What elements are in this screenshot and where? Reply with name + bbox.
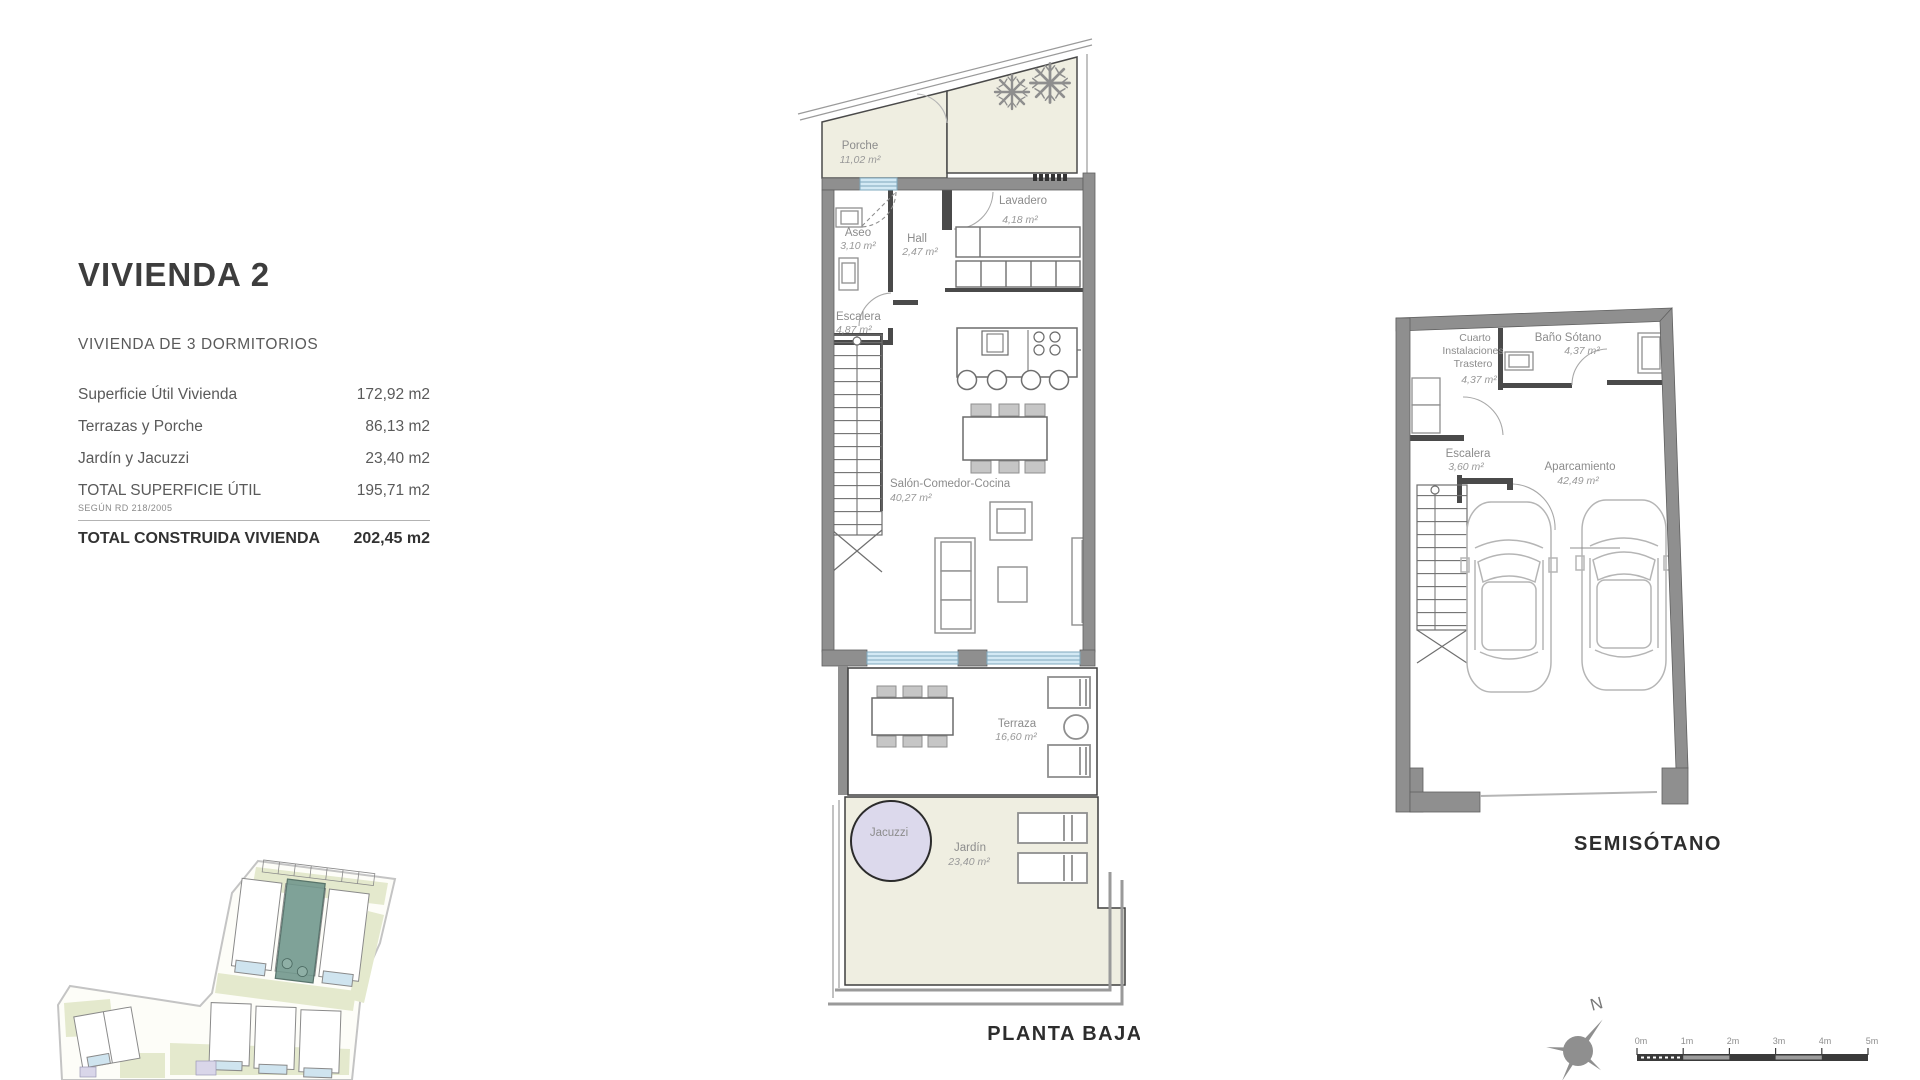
label-escalera-name: Escalera [836, 311, 881, 323]
area-row-util: Superficie Útil Vivienda 172,92 m2 [78, 386, 430, 406]
label-bano-name: Baño Sótano [1535, 332, 1602, 344]
info-panel: VIVIENDA 2 VIVIENDA DE 3 DORMITORIOS Sup… [78, 256, 430, 566]
label-aseo-area: 3,10 m² [840, 240, 876, 252]
area-row-label: TOTAL SUPERFICIE ÚTIL [78, 482, 261, 500]
label-aparcamiento-area: 42,49 m² [1557, 475, 1599, 487]
site-units-lower [209, 1003, 341, 1078]
label-sot-escalera-name: Escalera [1446, 448, 1491, 460]
ground-floor-plan: Porche 11,02 m² Aseo 3,10 m² Hall 2,47 m… [660, 30, 1140, 1050]
scale-bar: 0m 1m 2m 3m 4m 5m [1630, 1032, 1880, 1077]
label-porche-area: 11,02 m² [840, 154, 881, 166]
label-hall-area: 2,47 m² [901, 246, 938, 258]
label-aparcamiento-name: Aparcamiento [1545, 461, 1616, 473]
terrace-side-wall [838, 666, 848, 795]
divider-line [78, 520, 430, 521]
area-row-value: 23,40 m2 [365, 450, 430, 468]
kitchen-island [957, 328, 1083, 377]
area-row-value: 172,92 m2 [357, 386, 430, 404]
label-salon-name: Salón-Comedor-Cocina [890, 478, 1011, 490]
basement-title: SEMISÓTANO [1574, 831, 1720, 855]
total-built-value: 202,45 m2 [353, 530, 430, 548]
ground-floor-title: PLANTA BAJA [987, 1023, 1140, 1045]
scale-bar-ticks [1637, 1048, 1868, 1055]
area-row-value: 195,71 m2 [357, 482, 430, 500]
scale-tick-label: 0m [1635, 1036, 1648, 1046]
label-aseo-name: Aseo [845, 227, 871, 239]
plan-sheet: VIVIENDA 2 VIVIENDA DE 3 DORMITORIOS Sup… [0, 0, 1920, 1080]
label-hall-name: Hall [907, 233, 927, 245]
label-lavadero-area: 4,18 m² [1002, 214, 1038, 226]
area-row-label: Superficie Útil Vivienda [78, 386, 237, 404]
unit-title: VIVIENDA 2 [78, 256, 270, 294]
label-jardin-area: 23,40 m² [947, 856, 990, 868]
scale-tick-label: 2m [1727, 1036, 1740, 1046]
kitchen-counters [956, 227, 1080, 287]
area-row-label: Terrazas y Porche [78, 418, 203, 436]
compass-icon [1546, 1020, 1602, 1080]
label-lavadero-name: Lavadero [999, 195, 1047, 207]
label-sot-escalera-area: 3,60 m² [1448, 461, 1484, 473]
label-cuarto-area: 4,37 m² [1461, 374, 1497, 386]
area-row-value: 86,13 m2 [365, 418, 430, 436]
total-built-label: TOTAL CONSTRUIDA VIVIENDA [78, 530, 320, 548]
basement-plan: Cuarto Instalaciones Trastero 4,37 m² Ba… [1390, 300, 1720, 870]
scale-bar-segment [1683, 1056, 1729, 1060]
site-unit-left [74, 1007, 140, 1068]
site-plan-thumbnail [50, 853, 425, 1080]
dining-set [963, 404, 1047, 473]
scale-tick-label: 5m [1866, 1036, 1879, 1046]
label-cuarto-line2: Instalaciones [1442, 345, 1503, 357]
label-terraza-name: Terraza [998, 718, 1037, 730]
label-escalera-area: 4,87 m² [836, 324, 872, 336]
regulation-note: SEGÚN RD 218/2005 [78, 503, 172, 513]
label-cuarto-line1: Cuarto [1459, 332, 1491, 344]
scale-bar-segment [1776, 1056, 1822, 1060]
label-cuarto-line3: Trastero [1454, 358, 1493, 370]
scale-tick-label: 3m [1773, 1036, 1786, 1046]
label-jardin-name: Jardín [954, 842, 986, 854]
area-row-jardin: Jardín y Jacuzzi 23,40 m2 [78, 450, 430, 470]
total-built-row: TOTAL CONSTRUIDA VIVIENDA 202,45 m2 [78, 530, 430, 552]
jacuzzi-circle [851, 801, 931, 881]
terrace-dining-set [872, 686, 953, 747]
area-row-total-util: TOTAL SUPERFICIE ÚTIL 195,71 m2 [78, 482, 430, 502]
label-porche-name: Porche [842, 140, 878, 152]
scale-tick-label: 4m [1819, 1036, 1832, 1046]
area-row-label: Jardín y Jacuzzi [78, 450, 189, 468]
label-bano-area: 4,37 m² [1564, 345, 1600, 357]
label-salon-area: 40,27 m² [890, 492, 932, 504]
scale-tick-label: 1m [1681, 1036, 1694, 1046]
area-row-terrazas: Terrazas y Porche 86,13 m2 [78, 418, 430, 438]
label-jacuzzi-name: Jacuzzi [870, 827, 908, 839]
label-terraza-area: 16,60 m² [995, 731, 1037, 743]
north-label: N [1588, 993, 1605, 1015]
unit-subtitle: VIVIENDA DE 3 DORMITORIOS [78, 336, 318, 354]
